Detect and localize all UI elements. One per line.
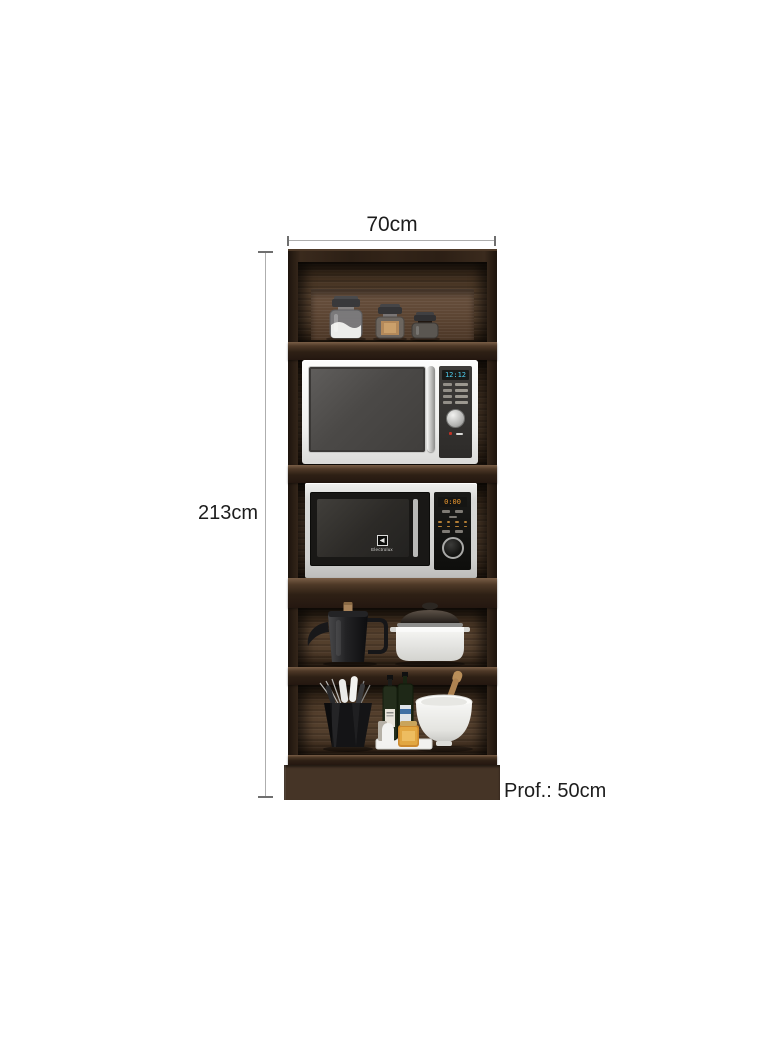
microwave-clock-display: 0:00 [438,497,467,507]
cabinet-bottom-edge [288,755,497,765]
microwave-indicator-marks [439,432,472,435]
shelf-compartment-top [298,262,487,342]
microwave-door [308,366,426,453]
microwave-buttons-row [438,530,467,533]
microwave-handle [413,499,418,557]
microwave-electrolux: Electrolux 0:00 [305,483,477,578]
depth-dimension-label: Prof.: 50cm [504,780,606,803]
glass-jar-large [330,296,362,338]
height-dimension-tick-top [258,251,273,253]
product-dimension-diagram: 70cm 213cm Prof.: 50cm [0,0,780,1040]
microwave-control-panel: 12:12 [439,366,472,458]
casserole-dish [390,603,470,662]
glass-jar-small [412,312,438,338]
cabinet-plinth-base [284,765,500,800]
shelf-divider [288,578,497,608]
microwave-label-row [438,526,467,528]
microwave-buttons-row [443,401,468,404]
height-dimension-line [265,252,266,797]
spice-jars-graphic [298,262,487,342]
microwave-door: Electrolux [310,492,430,566]
shelf-compartment-cookware [298,608,487,667]
width-dimension-label: 70cm [288,213,496,237]
microwave-dial-knob [446,409,465,428]
microwave-window [317,499,409,557]
utensils-graphic [298,685,487,755]
width-dimension-tick-right [494,236,496,246]
microwave-dial-knob [442,537,464,559]
width-dimension-line [288,240,496,241]
utensil-holder [320,676,372,747]
cookware-graphic [298,608,487,667]
shelf-compartment-utensils [298,685,487,755]
microwave-buttons-row [438,516,467,519]
microwave-handle [427,366,435,452]
electrolux-brand-text: Electrolux [369,547,395,552]
coffee-kettle [308,602,386,662]
electrolux-logo: Electrolux [369,535,395,552]
glass-jar-medium [376,304,404,338]
height-dimension-label: 213cm [180,502,258,525]
microwave-buttons-row [443,395,468,398]
microwave-buttons-row [438,510,467,513]
width-dimension-tick-left [287,236,289,246]
microwave-white: 12:12 [302,360,478,464]
microwave-buttons-row [443,383,468,386]
cabinet-body: 12:12 Electrolux 0:00 [288,249,497,765]
height-dimension-tick-bottom [258,796,273,798]
microwave-buttons-row [443,389,468,392]
shelf-divider [288,465,497,483]
microwave-label-row [438,521,467,523]
microwave-control-panel: 0:00 [434,492,471,570]
electrolux-logo-icon [377,535,388,546]
shelf-divider [288,342,497,360]
microwave-clock-display: 12:12 [442,370,469,380]
